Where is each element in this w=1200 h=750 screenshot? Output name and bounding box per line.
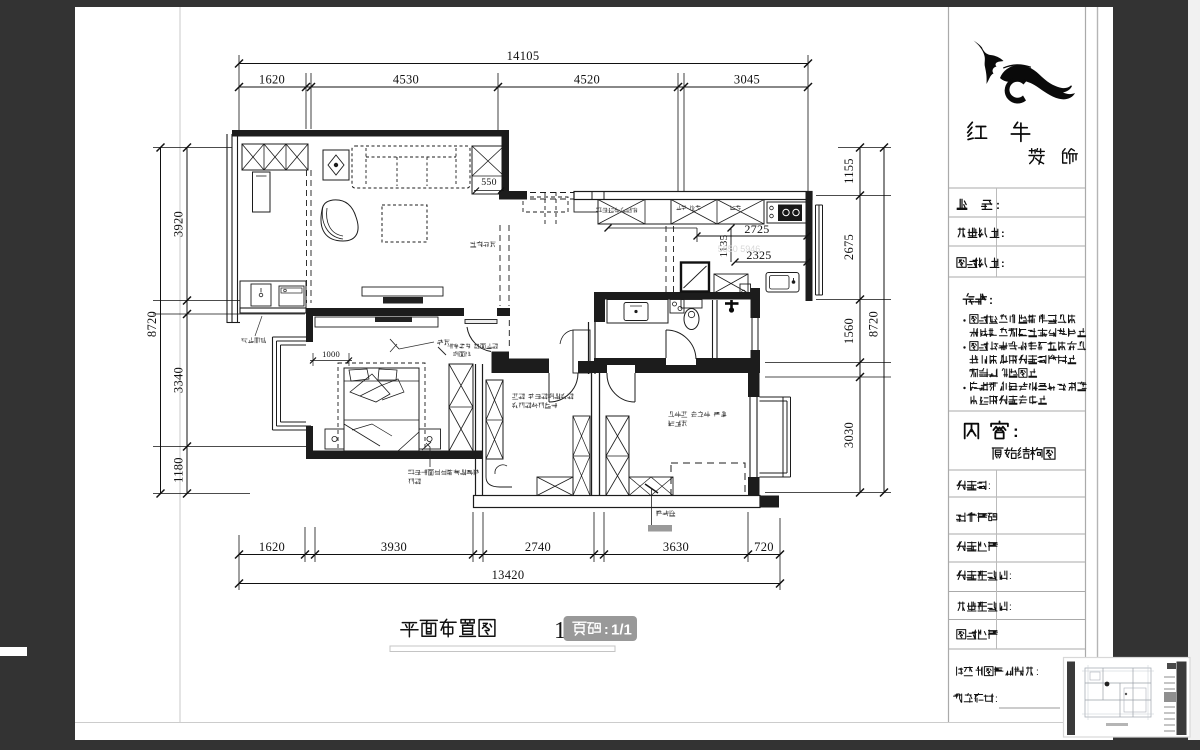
svg-text:2740: 2740 — [525, 540, 551, 554]
svg-text:3930: 3930 — [381, 540, 407, 554]
svg-text::: : — [988, 481, 991, 492]
svg-text:3630: 3630 — [663, 540, 689, 554]
svg-text::: : — [1001, 228, 1005, 240]
svg-text::: : — [1036, 667, 1039, 678]
svg-text:2725: 2725 — [744, 222, 769, 236]
svg-text:5850 5946: 5850 5946 — [718, 244, 761, 254]
svg-text::: : — [989, 293, 993, 307]
svg-text::: : — [1001, 258, 1005, 270]
svg-text:720: 720 — [754, 540, 774, 554]
svg-text:4520: 4520 — [574, 73, 600, 87]
svg-text:3340: 3340 — [172, 367, 186, 393]
svg-text::: : — [1009, 602, 1012, 613]
svg-text:550: 550 — [481, 177, 497, 188]
svg-text:1/1: 1/1 — [611, 622, 632, 639]
svg-text:8720: 8720 — [867, 311, 881, 337]
svg-text:2675: 2675 — [842, 234, 856, 260]
svg-text::: : — [604, 621, 609, 637]
svg-text:1180: 1180 — [172, 457, 186, 483]
svg-text:13420: 13420 — [492, 568, 525, 582]
svg-text:3030: 3030 — [842, 422, 856, 448]
svg-text:1560: 1560 — [842, 318, 856, 344]
svg-text:1620: 1620 — [259, 540, 285, 554]
svg-text:3045: 3045 — [734, 73, 760, 87]
svg-text::: : — [1013, 422, 1019, 441]
svg-text:4530: 4530 — [393, 73, 419, 87]
svg-text::: : — [1009, 571, 1012, 582]
svg-text:1620: 1620 — [259, 73, 285, 87]
svg-text::: : — [995, 694, 998, 705]
svg-text:3920: 3920 — [172, 211, 186, 237]
svg-text:1000: 1000 — [322, 349, 340, 359]
svg-text:1155: 1155 — [842, 158, 856, 184]
svg-text:8720: 8720 — [145, 311, 159, 337]
svg-text:14105: 14105 — [507, 49, 540, 63]
svg-text::: : — [996, 198, 1000, 212]
